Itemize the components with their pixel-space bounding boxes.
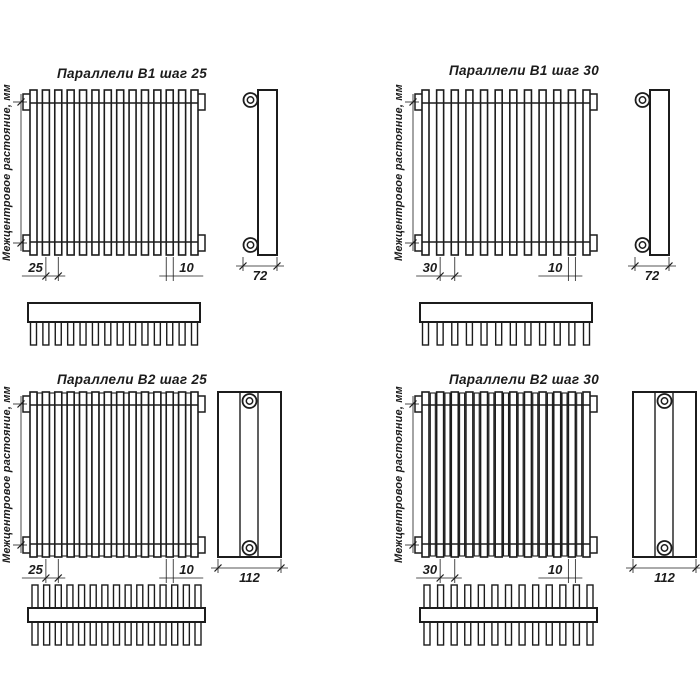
depth-dimension-label: 72 bbox=[253, 268, 268, 283]
back-tube bbox=[460, 393, 465, 556]
tube bbox=[495, 392, 502, 557]
front-view bbox=[415, 392, 597, 557]
section-tooth bbox=[569, 320, 575, 345]
tube bbox=[141, 392, 148, 557]
tube bbox=[92, 392, 99, 557]
back-tube bbox=[99, 393, 104, 556]
tube bbox=[141, 90, 148, 255]
section-tooth bbox=[540, 320, 546, 345]
side-body bbox=[258, 90, 277, 255]
section-tooth bbox=[130, 320, 136, 345]
tube bbox=[451, 392, 458, 557]
tube bbox=[568, 90, 575, 255]
quadrant-b1-step-30: Параллели В1 шаг 30Межцентровое растояни… bbox=[393, 63, 676, 345]
tube bbox=[166, 90, 173, 255]
top-section-view bbox=[420, 585, 597, 645]
tube bbox=[422, 392, 429, 557]
tube bbox=[437, 90, 444, 255]
depth-dimension-label: 112 bbox=[239, 570, 260, 585]
section-header-bar bbox=[28, 303, 200, 322]
section-tooth bbox=[496, 320, 502, 345]
section-tooth bbox=[55, 320, 61, 345]
tube bbox=[55, 90, 62, 255]
top-section-view bbox=[28, 585, 205, 645]
connection-bung-inner bbox=[247, 97, 253, 103]
technical-drawing: Параллели В1 шаг 25Межцентровое растояни… bbox=[0, 0, 700, 700]
back-tube bbox=[62, 393, 67, 556]
back-tube bbox=[186, 393, 191, 556]
side-body bbox=[650, 90, 669, 255]
side-view: 72 bbox=[628, 90, 676, 283]
tube bbox=[30, 90, 37, 255]
section-tooth bbox=[142, 320, 148, 345]
tube bbox=[67, 392, 74, 557]
tube bbox=[554, 392, 561, 557]
back-tube bbox=[430, 393, 435, 556]
tube bbox=[80, 90, 87, 255]
section-header-bar bbox=[420, 303, 592, 322]
tube-width-dimension-label: 10 bbox=[179, 562, 194, 577]
quadrant-title: Параллели В1 шаг 30 bbox=[449, 63, 599, 78]
bottom-dimensions: 3010 bbox=[416, 257, 582, 281]
connection-bung-inner bbox=[661, 398, 667, 404]
bottom-dimensions: 2510 bbox=[22, 559, 203, 583]
section-tooth bbox=[105, 320, 111, 345]
tube bbox=[524, 392, 531, 557]
connection-bung-inner bbox=[246, 545, 252, 551]
step-dimension-label: 30 bbox=[423, 260, 438, 275]
depth-dimension-label: 72 bbox=[645, 268, 660, 283]
tube bbox=[55, 392, 62, 557]
tube bbox=[92, 90, 99, 255]
section-tooth bbox=[92, 320, 98, 345]
tube bbox=[154, 90, 161, 255]
tube bbox=[154, 392, 161, 557]
section-tooth bbox=[31, 320, 37, 345]
back-tube bbox=[577, 393, 582, 556]
quadrant-b2-step-25: Параллели В2 шаг 25Межцентровое растояни… bbox=[1, 372, 288, 645]
section-tooth bbox=[179, 320, 185, 345]
section-tooth bbox=[154, 320, 160, 345]
tube bbox=[481, 90, 488, 255]
quadrant-title: Параллели В2 шаг 25 bbox=[57, 372, 207, 387]
connection-bung-inner bbox=[639, 242, 645, 248]
tube bbox=[583, 392, 590, 557]
back-tube bbox=[445, 393, 450, 556]
back-tube bbox=[149, 393, 154, 556]
section-tooth bbox=[510, 320, 516, 345]
tube bbox=[117, 392, 124, 557]
section-tooth bbox=[452, 320, 458, 345]
tube bbox=[451, 90, 458, 255]
tube bbox=[129, 90, 136, 255]
tube bbox=[191, 392, 198, 557]
back-tube bbox=[489, 393, 494, 556]
tube bbox=[129, 392, 136, 557]
axis-label: Межцентровое растояние, мм bbox=[393, 386, 405, 563]
back-tube bbox=[533, 393, 538, 556]
back-tube bbox=[112, 393, 117, 556]
side-view: 72 bbox=[236, 90, 284, 283]
quadrant-title: Параллели В2 шаг 30 bbox=[449, 372, 599, 387]
section-tooth bbox=[43, 320, 49, 345]
section-tooth bbox=[423, 320, 429, 345]
tube-width-dimension-label: 10 bbox=[548, 562, 563, 577]
connection-bung-inner bbox=[639, 97, 645, 103]
tube bbox=[104, 90, 111, 255]
section-tooth bbox=[481, 320, 487, 345]
tube bbox=[437, 392, 444, 557]
side-view: 112 bbox=[211, 392, 288, 585]
tube bbox=[539, 392, 546, 557]
back-tube bbox=[87, 393, 92, 556]
step-dimension-label: 25 bbox=[27, 562, 43, 577]
tube bbox=[510, 392, 517, 557]
quadrant-title: Параллели В1 шаг 25 bbox=[57, 66, 207, 81]
tube bbox=[422, 90, 429, 255]
tube bbox=[466, 392, 473, 557]
tube bbox=[191, 90, 198, 255]
back-tube bbox=[474, 393, 479, 556]
top-section-view bbox=[420, 303, 592, 345]
front-view bbox=[23, 392, 205, 557]
tube bbox=[510, 90, 517, 255]
connection-bung-inner bbox=[247, 242, 253, 248]
bottom-dimensions: 2510 bbox=[22, 257, 203, 281]
connection-bung-inner bbox=[661, 545, 667, 551]
quadrant-b2-step-30: Параллели В2 шаг 30Межцентровое растояни… bbox=[393, 372, 700, 645]
axis-label: Межцентровое растояние, мм bbox=[1, 84, 13, 261]
tube bbox=[42, 90, 49, 255]
tube bbox=[583, 90, 590, 255]
front-view bbox=[23, 90, 205, 255]
quadrant-b1-step-25: Параллели В1 шаг 25Межцентровое растояни… bbox=[1, 66, 284, 345]
tube bbox=[481, 392, 488, 557]
section-tooth bbox=[437, 320, 443, 345]
side-view: 112 bbox=[626, 392, 700, 585]
section-tooth bbox=[68, 320, 74, 345]
back-tube bbox=[562, 393, 567, 556]
section-tooth bbox=[167, 320, 173, 345]
back-tube bbox=[161, 393, 166, 556]
tube bbox=[554, 90, 561, 255]
section-tooth bbox=[525, 320, 531, 345]
section-header-bar bbox=[28, 608, 205, 622]
back-tube bbox=[37, 393, 42, 556]
axis-label: Межцентровое растояние, мм bbox=[1, 386, 13, 563]
tube bbox=[179, 90, 186, 255]
tube bbox=[42, 392, 49, 557]
tube-width-dimension-label: 10 bbox=[179, 260, 194, 275]
section-tooth bbox=[584, 320, 590, 345]
tube bbox=[67, 90, 74, 255]
back-tube bbox=[124, 393, 129, 556]
section-header-bar bbox=[420, 608, 597, 622]
connection-bung-inner bbox=[246, 398, 252, 404]
back-tube bbox=[50, 393, 55, 556]
step-dimension-label: 25 bbox=[27, 260, 43, 275]
tube bbox=[117, 90, 124, 255]
tube bbox=[80, 392, 87, 557]
tube bbox=[568, 392, 575, 557]
back-tube bbox=[547, 393, 552, 556]
bottom-dimensions: 3010 bbox=[416, 559, 582, 583]
tube bbox=[495, 90, 502, 255]
tube bbox=[524, 90, 531, 255]
back-tube bbox=[173, 393, 178, 556]
side-body bbox=[218, 392, 281, 557]
step-dimension-label: 30 bbox=[423, 562, 438, 577]
tube bbox=[466, 90, 473, 255]
back-tube bbox=[518, 393, 523, 556]
depth-dimension-label: 112 bbox=[654, 570, 675, 585]
drawing-canvas: Параллели В1 шаг 25Межцентровое растояни… bbox=[0, 0, 700, 700]
top-section-view bbox=[28, 303, 200, 345]
back-tube bbox=[74, 393, 79, 556]
tube bbox=[539, 90, 546, 255]
side-body bbox=[633, 392, 696, 557]
section-tooth bbox=[192, 320, 198, 345]
tube bbox=[166, 392, 173, 557]
tube bbox=[30, 392, 37, 557]
section-tooth bbox=[466, 320, 472, 345]
section-tooth bbox=[554, 320, 560, 345]
tube bbox=[179, 392, 186, 557]
front-view bbox=[415, 90, 597, 255]
back-tube bbox=[136, 393, 141, 556]
back-tube bbox=[504, 393, 509, 556]
section-tooth bbox=[117, 320, 123, 345]
axis-label: Межцентровое растояние, мм bbox=[393, 84, 405, 261]
section-tooth bbox=[80, 320, 86, 345]
tube bbox=[104, 392, 111, 557]
tube-width-dimension-label: 10 bbox=[548, 260, 563, 275]
